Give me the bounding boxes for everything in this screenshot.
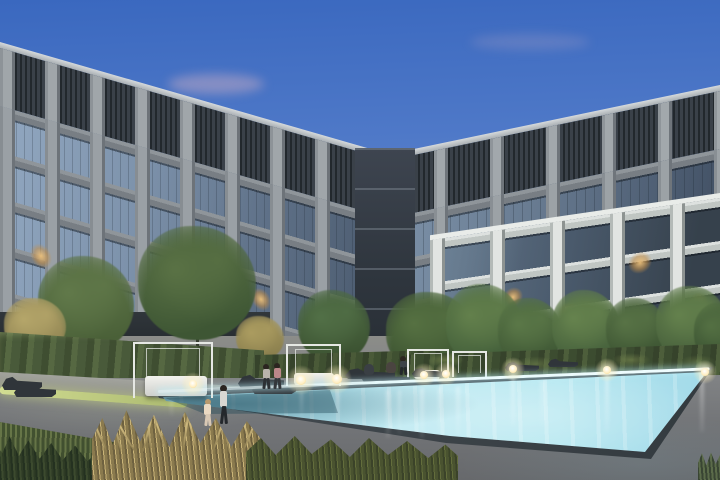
person-sit bbox=[386, 362, 396, 373]
person-child bbox=[202, 399, 213, 427]
person-leg bbox=[277, 378, 281, 390]
warm-lit-window bbox=[628, 250, 652, 276]
warm-lit-window bbox=[30, 241, 52, 271]
pink-cloud bbox=[168, 74, 264, 94]
person-leg bbox=[403, 367, 407, 375]
pool-light-ball bbox=[603, 366, 611, 374]
water-reflection-streak bbox=[170, 400, 173, 416]
person-leg bbox=[207, 414, 211, 426]
person-stand bbox=[261, 364, 271, 390]
pool-light-ball bbox=[189, 380, 197, 388]
person-stand bbox=[272, 363, 282, 390]
water-reflection-streak bbox=[420, 388, 424, 438]
water-reflection-streak bbox=[438, 388, 441, 434]
person-leg bbox=[223, 406, 228, 424]
pool-light-ball bbox=[442, 370, 450, 378]
water-reflection-streak bbox=[398, 390, 401, 434]
person-adult bbox=[216, 385, 231, 427]
water-reflection-streak bbox=[386, 390, 390, 438]
pool-light-ball bbox=[701, 368, 709, 376]
person-leg bbox=[266, 378, 270, 389]
water-reflection-streak bbox=[540, 380, 546, 426]
pool-light-ball bbox=[332, 374, 342, 384]
pool-light-ball bbox=[420, 371, 428, 379]
tree-canopy bbox=[138, 226, 256, 340]
scene-apartment-pool-dusk bbox=[0, 0, 720, 480]
person-sit bbox=[364, 364, 374, 375]
person-torso bbox=[274, 368, 281, 378]
pool-light-ball bbox=[296, 375, 306, 385]
person-torso bbox=[220, 391, 227, 407]
water-reflection-streak bbox=[456, 386, 460, 436]
pink-cloud bbox=[470, 34, 590, 50]
pool-light-ball bbox=[509, 365, 517, 373]
person-stand bbox=[398, 356, 408, 374]
